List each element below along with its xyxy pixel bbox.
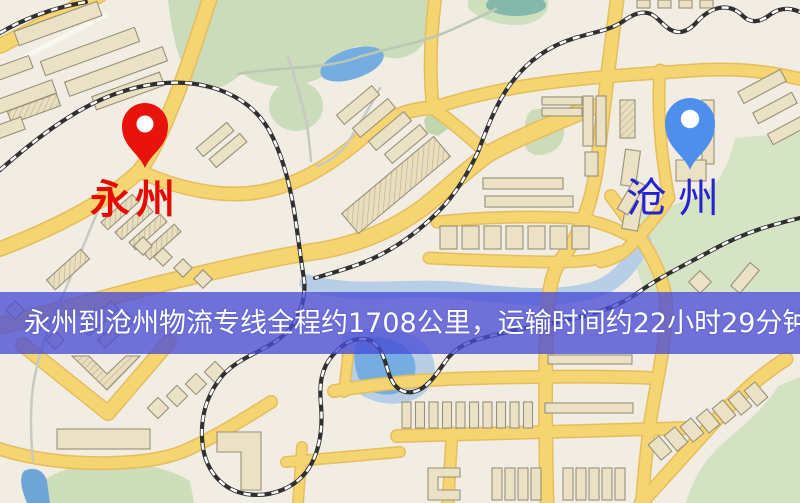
map-image (0, 0, 800, 503)
route-info-text: 永州到沧州物流专线全程约1708公里，运输时间约22小时29分钟. (24, 310, 800, 337)
destination-label: 沧州 (626, 178, 730, 219)
map-canvas (0, 0, 800, 503)
origin-label: 永州 (90, 180, 180, 220)
route-info-banner: 永州到沧州物流专线全程约1708公里，运输时间约22小时29分钟. (0, 292, 800, 354)
